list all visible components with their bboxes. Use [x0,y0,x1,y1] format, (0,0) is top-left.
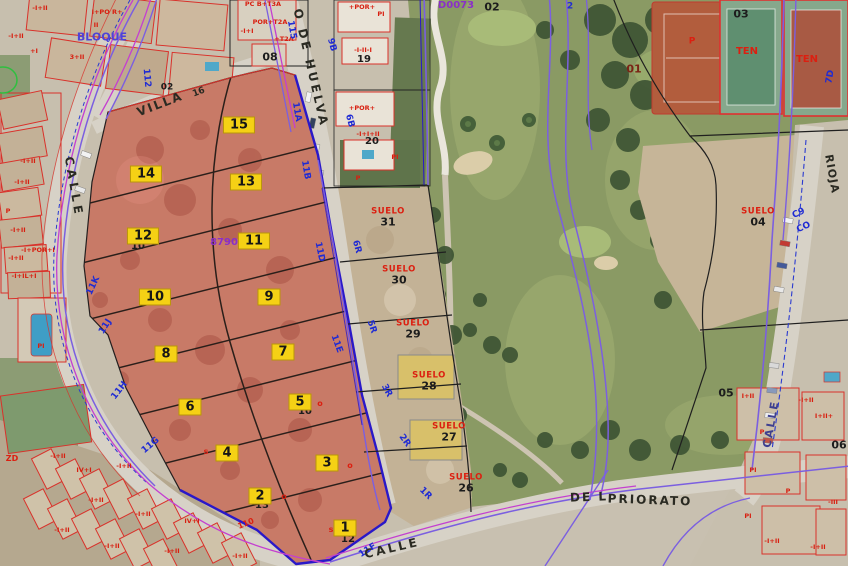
building-volume-label: -I+II [232,553,247,560]
building-volume-label: -I+II [8,33,23,40]
building-volume-label: -I+II [164,548,179,555]
parcel-marker[interactable]: 2 [248,488,271,505]
building-volume-label: I+II [742,393,755,400]
parcel-marker[interactable]: 1 [333,520,356,537]
red-map-text: P [689,38,696,47]
building-volume-label: II [94,22,99,29]
building-volume-label: -I+I [241,28,254,35]
building-volume-label: P [356,175,361,182]
street-number-code: 11D [313,241,326,262]
street-name: CALLE [63,156,86,219]
street-number-code: 11H [110,380,129,401]
parcel-marker[interactable]: 6 [178,399,201,416]
block-number: 19 [357,55,371,65]
building-volume-label: -I+POR+I [21,247,55,254]
street-name: VILLA [135,90,184,119]
suelo-parcel-number: 29 [405,328,420,339]
block-number: 06 [831,440,846,451]
building-volume-label: PI [37,343,44,350]
building-volume-label: -I+II [32,5,47,12]
parcel-marker[interactable]: 7 [271,344,294,361]
street-name: PRIORATO [607,493,692,508]
suelo-parcel-number: 26 [458,482,473,493]
building-volume-label: POR+T2A [253,19,288,26]
street-number-code: CO [796,221,813,235]
building-volume-label: -I+II [50,453,65,460]
building-volume-label: P [786,488,791,495]
suelo-parcel-label: SUELO30 [382,265,416,285]
street-name: 16 [192,87,207,100]
building-volume-label: 3+II [70,54,85,61]
building-volume-label: -I+II [54,527,69,534]
parcel-marker[interactable]: 15 [223,117,255,134]
parcel-marker[interactable]: 14 [130,166,162,183]
suelo-parcel-label: SUELO31 [371,207,405,227]
suelo-parcel-number: 30 [391,274,406,285]
building-volume-label: -I+II [810,544,825,551]
building-volume-label: IV+I [184,518,199,525]
street-number-code: 11K [86,275,102,296]
building-volume-label: -III [828,499,838,506]
building-volume-label: -I+II [116,463,131,470]
building-volume-label: +I [30,48,38,55]
suelo-parcel-label: SUELO28 [412,371,446,391]
building-volume-label: -I+II [104,543,119,550]
building-volume-label: +POR+ [349,105,375,112]
building-volume-label: PI [377,11,384,18]
building-volume-label: +POR+ [349,4,375,11]
suelo-parcel-number: 31 [380,216,395,227]
building-volume-label: PI [749,467,756,474]
map-labels-layer: s1213oos10o10SUELO31SUELO30SUELO29SUELO2… [0,0,848,566]
red-map-text: TEN [736,47,758,57]
street-name: DE L [570,490,608,503]
street-number-code: 11J [98,318,114,336]
street-number-code: 112 [141,68,152,88]
street-number-code: 6R [350,239,362,254]
suelo-parcel-label: SUELO26 [449,473,483,493]
street-number-code: C9 [791,207,806,221]
street-name: CALLE [363,536,421,560]
street-name: RIOJA [823,154,841,195]
suelo-parcel-number: 27 [441,431,456,442]
street-number-code: 9B [325,37,337,52]
suelo-parcel-label: SUELO04 [741,207,775,227]
red-map-text: ZD [6,455,18,463]
street-number-code: 3R [379,383,393,399]
street-number-code: 5R [365,319,378,334]
red-map-text: TEN [796,55,818,65]
building-volume-label: I+PO R+ [92,9,123,16]
street-number-code: 6B [343,113,355,128]
parcel-underlying-number: s [204,448,209,456]
building-volume-label: I+II+ [815,413,833,420]
building-volume-label: -I+IL+I [12,273,37,280]
building-volume-label: PC B+T3A [245,1,281,8]
cadastral-map-canvas[interactable]: s1213oos10o10SUELO31SUELO30SUELO29SUELO2… [0,0,848,566]
building-volume-label: P [6,208,11,215]
street-name: CALLE [761,399,780,448]
street-number-code: 11B [299,160,311,181]
building-volume-label: -I+II [10,227,25,234]
parcel-underlying-number: o [281,493,287,501]
suelo-parcel-label: SUELO27 [432,422,466,442]
parcel-marker[interactable]: 3 [315,455,338,472]
parcel-marker[interactable]: 10 [139,289,171,306]
block-number: 02 [484,2,499,13]
suelo-parcel-number: 28 [421,380,436,391]
parcel-underlying-number: o [347,462,353,470]
street-number-code: 1R [417,486,433,502]
street-number-code: 2 [567,3,573,12]
parcel-marker[interactable]: 5 [288,394,311,411]
block-number: 01 [626,64,641,75]
parcel-marker[interactable]: 11 [238,233,270,250]
map-sheet-code: D0073 [438,1,474,11]
building-volume-label: -I+II [798,397,813,404]
street-number-code: 11A [290,102,302,123]
building-volume-label: -I+II [8,255,23,262]
parcel-marker[interactable]: 9 [257,289,280,306]
suelo-parcel-label: SUELO29 [396,319,430,339]
building-volume-label: -I+II [14,179,29,186]
building-volume-label: -I+II [88,497,103,504]
street-number-code: 11G [140,436,161,456]
street-number-code: 11E [329,334,344,355]
parcel-marker[interactable]: 8 [154,346,177,363]
parcel-underlying-number: 12 [341,535,355,545]
street-number-code: 7D [825,69,836,84]
building-volume-label: PI [391,154,398,161]
parcel-underlying-number: o [317,400,323,408]
block-number: 08 [262,52,277,63]
building-volume-label: -I+II [764,538,779,545]
building-volume-label: -I-II-I [354,47,372,54]
map-sheet-code: 8790 [210,238,238,248]
block-number: 05 [718,388,733,399]
suelo-parcel-number: 04 [750,216,765,227]
parcel-marker[interactable]: 13 [230,174,262,191]
red-map-text: 110 [237,517,255,531]
building-volume-label: PI [744,513,751,520]
block-number: 20 [365,137,379,147]
map-sheet-code: BLOQUE [77,32,127,43]
building-volume-label: IV+I [76,467,91,474]
building-volume-label: -I+II [135,511,150,518]
parcel-marker[interactable]: 12 [127,228,159,245]
building-volume-label: -I+II [20,158,35,165]
street-number-code: 2R [397,433,412,449]
parcel-marker[interactable]: 4 [215,445,238,462]
block-number: 03 [733,9,748,20]
